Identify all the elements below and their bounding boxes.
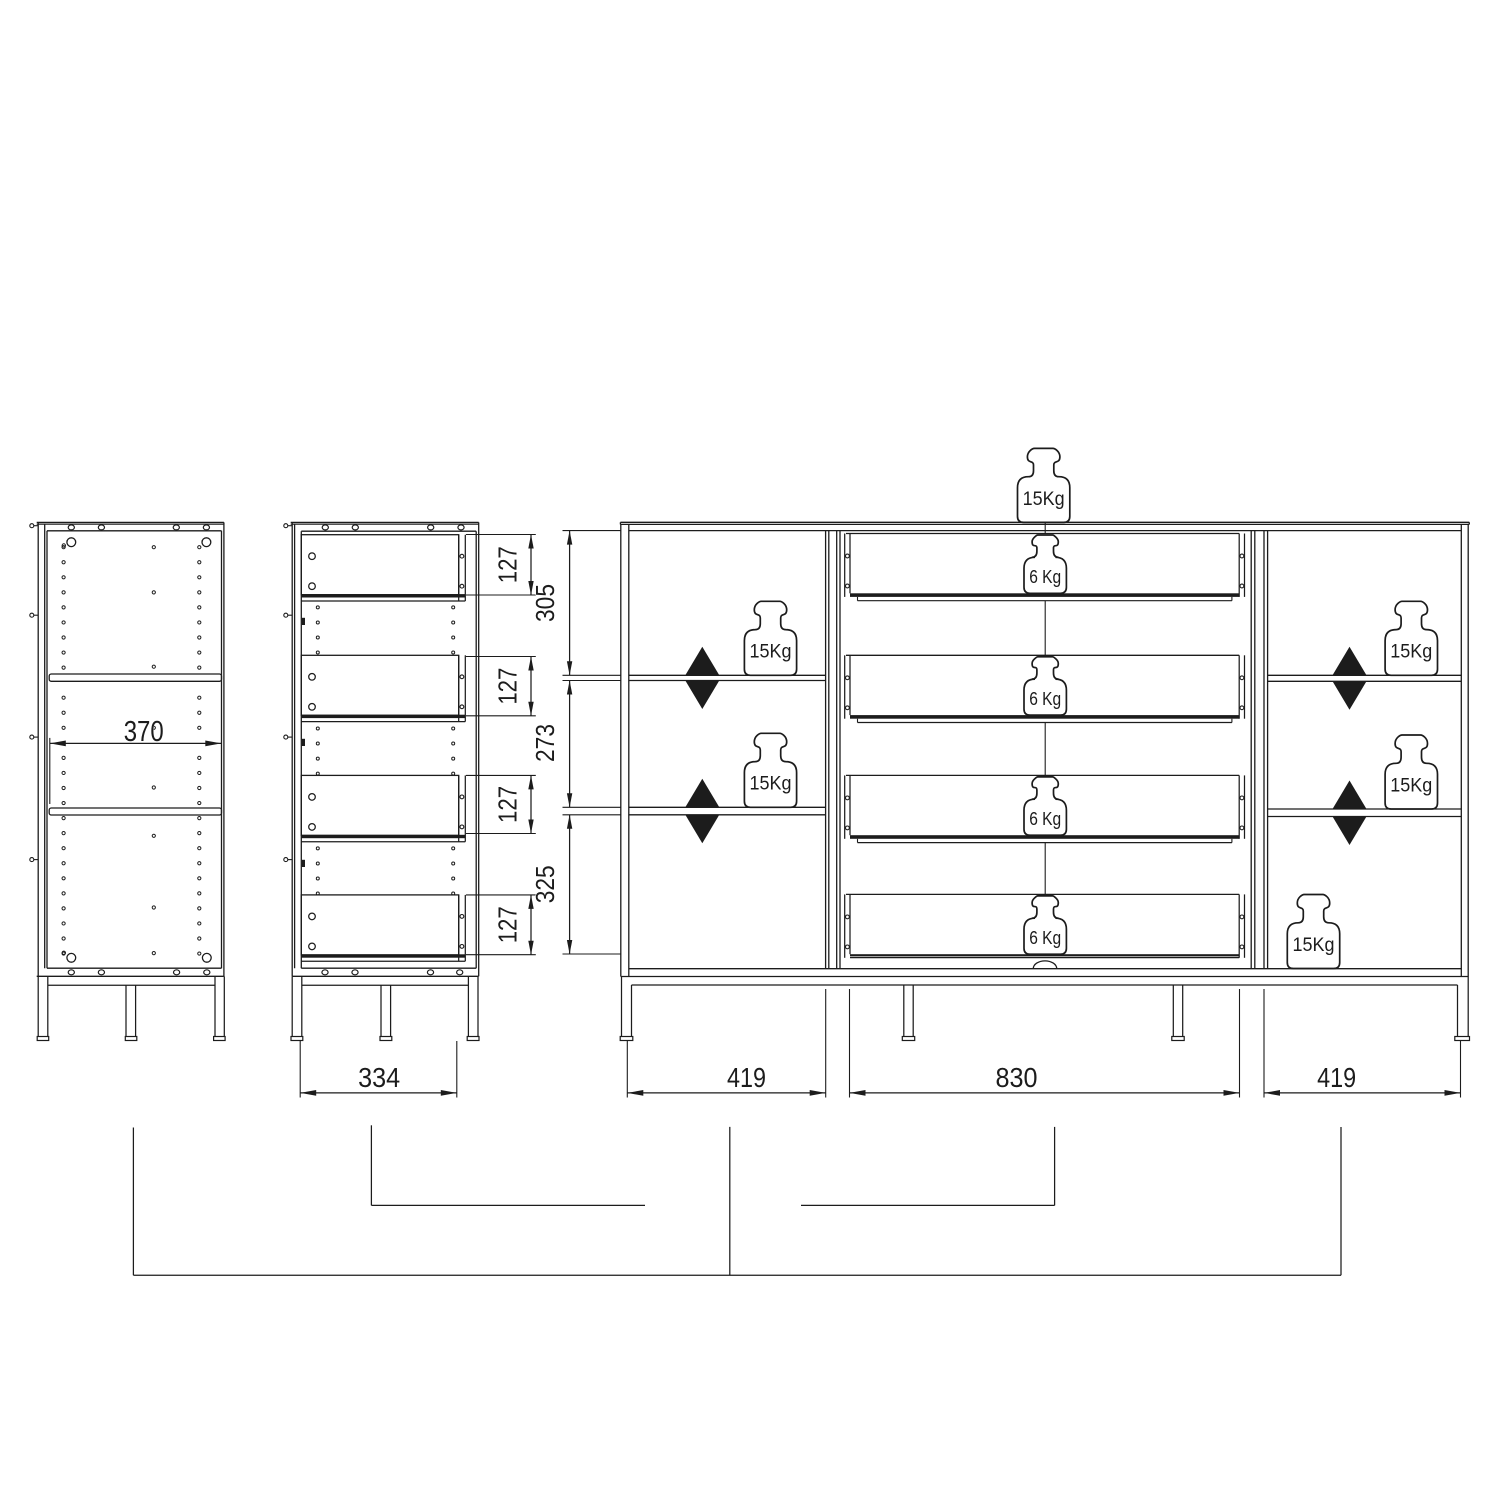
svg-text:15Kg: 15Kg — [1293, 934, 1335, 956]
svg-text:6 Kg: 6 Kg — [1029, 689, 1061, 709]
svg-text:334: 334 — [358, 1062, 400, 1093]
svg-text:127: 127 — [493, 906, 523, 943]
svg-text:15Kg: 15Kg — [750, 641, 792, 663]
svg-text:15Kg: 15Kg — [1390, 774, 1432, 796]
svg-text:15Kg: 15Kg — [1023, 488, 1065, 510]
svg-text:6 Kg: 6 Kg — [1029, 928, 1061, 948]
svg-text:15Kg: 15Kg — [750, 773, 792, 795]
svg-text:127: 127 — [493, 668, 523, 705]
svg-text:305: 305 — [530, 584, 560, 622]
svg-text:325: 325 — [530, 865, 560, 903]
svg-text:273: 273 — [530, 724, 560, 762]
svg-text:127: 127 — [493, 786, 523, 823]
svg-text:370: 370 — [124, 716, 164, 748]
svg-text:15Kg: 15Kg — [1390, 641, 1432, 663]
svg-text:419: 419 — [727, 1062, 766, 1093]
svg-text:419: 419 — [1317, 1062, 1356, 1093]
svg-text:830: 830 — [996, 1062, 1038, 1093]
svg-text:6 Kg: 6 Kg — [1029, 809, 1061, 829]
svg-text:6 Kg: 6 Kg — [1029, 567, 1061, 587]
svg-text:127: 127 — [493, 546, 523, 583]
